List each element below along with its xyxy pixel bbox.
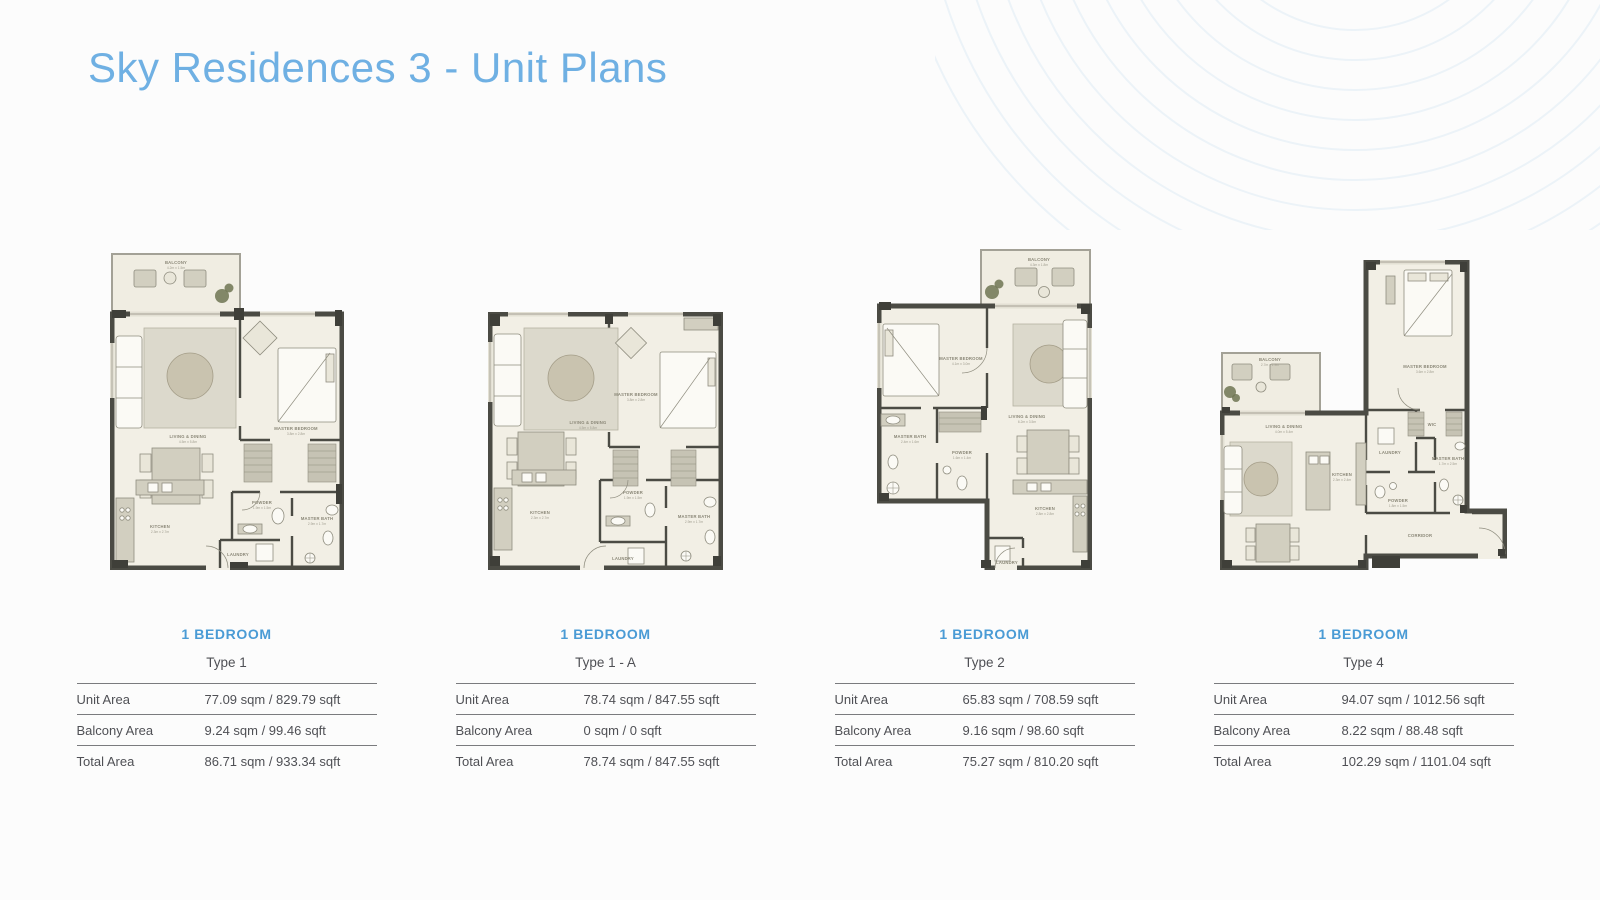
svg-text:POWDER: POWDER — [623, 490, 643, 495]
svg-text:MASTER BATH: MASTER BATH — [678, 514, 710, 519]
toilet — [705, 530, 715, 544]
row-label: Balcony Area — [456, 723, 584, 738]
svg-text:2.4m x 1.6m: 2.4m x 1.6m — [901, 440, 919, 444]
dining-chair — [140, 454, 151, 472]
kitchen-counter — [494, 488, 512, 550]
floor-plan-type-2: BALCONY 4.3m x 1.8m MASTER BEDROOM 4.1m … — [877, 248, 1092, 570]
toilet — [957, 476, 967, 490]
svg-text:1.7m x 2.5m: 1.7m x 2.5m — [1439, 462, 1457, 466]
dining-chair — [1290, 528, 1299, 542]
toilet — [323, 531, 333, 545]
svg-text:1.6m x 1.4m: 1.6m x 1.4m — [953, 456, 971, 460]
dining-chair — [202, 454, 213, 472]
sink — [1390, 483, 1397, 490]
toilet — [1440, 479, 1449, 491]
dining-chair — [1290, 546, 1299, 560]
svg-text:2.9m x 1.7m: 2.9m x 1.7m — [307, 522, 325, 526]
unit-type-label: Type 4 — [1343, 655, 1384, 670]
row-value: 75.27 sqm / 810.20 sqft — [963, 754, 1135, 769]
svg-text:4.3m x 1.8m: 4.3m x 1.8m — [1030, 263, 1048, 267]
floor-plan-type-1: BALCONY 4.2m x 1.5m LIVING & DINING 4.5m… — [110, 248, 344, 570]
sink — [704, 497, 716, 507]
dining-table — [1027, 430, 1069, 474]
lounge-chair — [1232, 364, 1252, 380]
svg-text:LIVING & DINING: LIVING & DINING — [1009, 414, 1046, 419]
dining-table — [1256, 524, 1290, 562]
sink — [536, 473, 546, 482]
sink — [148, 483, 158, 492]
row-label: Total Area — [77, 754, 205, 769]
dining-chair — [1017, 436, 1027, 452]
living-furniture — [1013, 320, 1087, 474]
table-row: Balcony Area 9.24 sqm / 99.46 sqft — [77, 714, 377, 745]
dining-chair — [1017, 458, 1027, 474]
washer — [256, 544, 273, 561]
dining-chair — [507, 438, 517, 455]
dining-chair — [1246, 546, 1255, 560]
svg-text:POWDER: POWDER — [1388, 498, 1408, 503]
unit-card-type-2: BALCONY 4.3m x 1.8m MASTER BEDROOM 4.1m … — [828, 238, 1141, 776]
table-row: Balcony Area 8.22 sqm / 88.48 sqft — [1214, 714, 1514, 745]
dresser — [684, 318, 718, 330]
svg-text:4.0m x 5.4m: 4.0m x 5.4m — [1275, 430, 1293, 434]
svg-text:1.8m x 1.5m: 1.8m x 1.5m — [1389, 504, 1407, 508]
svg-text:4.5m x 5.8m: 4.5m x 5.8m — [579, 426, 597, 430]
balcony-table — [164, 272, 176, 284]
svg-text:LAUNDRY: LAUNDRY — [996, 560, 1018, 565]
dining-chair — [566, 438, 576, 455]
svg-text:KITCHEN: KITCHEN — [1035, 506, 1055, 511]
floor-plan-type-4: BALCONY 2.7m x 1.9m MASTER BEDROOM 3.6m … — [1220, 260, 1507, 570]
pillow — [1408, 273, 1426, 281]
floor-plan-type-1a: LIVING & DINING 4.5m x 5.8m MASTER BEDRO… — [488, 312, 723, 570]
sink — [1027, 483, 1037, 491]
row-label: Total Area — [456, 754, 584, 769]
sink — [943, 466, 951, 474]
floor-plan-figure: BALCONY 4.2m x 1.5m LIVING & DINING 4.5m… — [110, 238, 344, 570]
area-table: Unit Area 77.09 sqm / 829.79 sqft Balcon… — [77, 683, 377, 776]
sofa — [1063, 320, 1087, 408]
kitchen-counter — [1356, 443, 1366, 505]
balcony-table — [1256, 382, 1266, 392]
unit-type-label: Type 1 — [206, 655, 247, 670]
sink — [1309, 456, 1318, 464]
dining-chair — [1246, 528, 1255, 542]
svg-text:LAUNDRY: LAUNDRY — [612, 556, 634, 561]
sink — [243, 525, 257, 533]
unit-card-type-4: BALCONY 2.7m x 1.9m MASTER BEDROOM 3.6m … — [1207, 238, 1520, 776]
pillow — [326, 354, 334, 382]
svg-text:MASTER BATH: MASTER BATH — [300, 516, 332, 521]
dresser — [1386, 276, 1395, 304]
row-value: 78.74 sqm / 847.55 sqft — [584, 754, 756, 769]
row-label: Unit Area — [456, 692, 584, 707]
wardrobe — [308, 444, 336, 482]
unit-bedroom-label: 1 BEDROOM — [1318, 626, 1408, 642]
kitchen-counter — [116, 498, 134, 562]
svg-text:2.7m x 1.9m: 2.7m x 1.9m — [1261, 363, 1279, 367]
svg-text:4.1m x 3.0m: 4.1m x 3.0m — [952, 362, 970, 366]
row-value: 0 sqm / 0 sqft — [584, 723, 756, 738]
svg-text:1.9m x 1.5m: 1.9m x 1.5m — [252, 506, 270, 510]
stair-block — [1372, 556, 1400, 568]
unit-type-label: Type 1 - A — [575, 655, 636, 670]
sink — [1455, 442, 1465, 450]
balcony-area — [1222, 353, 1320, 413]
pillow — [1430, 273, 1448, 281]
svg-text:MASTER BATH: MASTER BATH — [1432, 456, 1464, 461]
unit-plans-grid: BALCONY 4.2m x 1.5m LIVING & DINING 4.5m… — [70, 238, 1520, 776]
kitchen-counter — [1073, 496, 1087, 552]
wardrobe — [671, 450, 696, 486]
row-value: 86.71 sqm / 933.34 sqft — [205, 754, 377, 769]
unit-bedroom-label: 1 BEDROOM — [560, 626, 650, 642]
svg-text:3.8m x 2.8m: 3.8m x 2.8m — [286, 432, 304, 436]
toilet — [272, 508, 284, 524]
unit-type-label: Type 2 — [964, 655, 1005, 670]
wardrobe — [939, 412, 981, 432]
svg-text:POWDER: POWDER — [251, 500, 271, 505]
table-row: Total Area 78.74 sqm / 847.55 sqft — [456, 745, 756, 776]
sink — [886, 416, 900, 424]
row-value: 78.74 sqm / 847.55 sqft — [584, 692, 756, 707]
area-table: Unit Area 78.74 sqm / 847.55 sqft Balcon… — [456, 683, 756, 776]
svg-text:LIVING & DINING: LIVING & DINING — [169, 434, 206, 439]
dining-chair — [1069, 458, 1079, 474]
svg-text:4.2m x 1.5m: 4.2m x 1.5m — [166, 266, 184, 270]
row-label: Balcony Area — [77, 723, 205, 738]
lounge-chair — [1052, 268, 1074, 286]
svg-text:LIVING & DINING: LIVING & DINING — [570, 420, 607, 425]
lounge-chair — [184, 270, 206, 287]
floor-plan-figure: LIVING & DINING 4.5m x 5.8m MASTER BEDRO… — [488, 238, 723, 570]
row-label: Total Area — [1214, 754, 1342, 769]
area-table: Unit Area 65.83 sqm / 708.59 sqft Balcon… — [835, 683, 1135, 776]
svg-text:MASTER BEDROOM: MASTER BEDROOM — [939, 356, 983, 361]
sink — [611, 517, 625, 525]
page-title: Sky Residences 3 - Unit Plans — [88, 44, 667, 92]
row-value: 77.09 sqm / 829.79 sqft — [205, 692, 377, 707]
table-row: Unit Area 78.74 sqm / 847.55 sqft — [456, 683, 756, 714]
floor-plan-figure: BALCONY 4.3m x 1.8m MASTER BEDROOM 4.1m … — [877, 238, 1092, 570]
svg-text:KITCHEN: KITCHEN — [530, 510, 550, 515]
svg-text:2.9m x 1.7m: 2.9m x 1.7m — [685, 520, 703, 524]
lounge-chair — [1015, 268, 1037, 286]
svg-text:MASTER BEDROOM: MASTER BEDROOM — [274, 426, 318, 431]
row-label: Balcony Area — [835, 723, 963, 738]
svg-text:1.9m x 1.5m: 1.9m x 1.5m — [624, 496, 642, 500]
pillow — [708, 358, 715, 386]
svg-text:LIVING & DINING: LIVING & DINING — [1266, 424, 1303, 429]
dining-chair — [1069, 436, 1079, 452]
row-value: 9.16 sqm / 98.60 sqft — [963, 723, 1135, 738]
svg-text:BALCONY: BALCONY — [164, 260, 186, 265]
wardrobe — [244, 444, 272, 482]
sofa — [1224, 446, 1242, 514]
svg-text:MASTER BEDROOM: MASTER BEDROOM — [1403, 364, 1447, 369]
table-row: Balcony Area 9.16 sqm / 98.60 sqft — [835, 714, 1135, 745]
unit-card-type-1: BALCONY 4.2m x 1.5m LIVING & DINING 4.5m… — [70, 238, 383, 776]
row-label: Total Area — [835, 754, 963, 769]
coffee-table — [1030, 345, 1068, 383]
lounge-chair — [134, 270, 156, 287]
row-value: 9.24 sqm / 99.46 sqft — [205, 723, 377, 738]
area-table: Unit Area 94.07 sqm / 1012.56 sqft Balco… — [1214, 683, 1514, 776]
sink — [1041, 483, 1051, 491]
row-value: 8.22 sqm / 88.48 sqft — [1342, 723, 1514, 738]
sofa — [494, 334, 521, 426]
dining-table — [152, 448, 200, 504]
svg-text:4.5m x 5.8m: 4.5m x 5.8m — [178, 440, 196, 444]
svg-text:BALCONY: BALCONY — [1028, 257, 1050, 262]
sink — [1320, 456, 1329, 464]
table-row: Balcony Area 0 sqm / 0 sqft — [456, 714, 756, 745]
coffee-table — [1244, 462, 1278, 496]
row-label: Unit Area — [835, 692, 963, 707]
svg-text:MASTER BEDROOM: MASTER BEDROOM — [614, 392, 658, 397]
table-row: Unit Area 65.83 sqm / 708.59 sqft — [835, 683, 1135, 714]
table-row: Total Area 86.71 sqm / 933.34 sqft — [77, 745, 377, 776]
svg-text:2.3m x 2.7m: 2.3m x 2.7m — [531, 516, 549, 520]
table-row: Total Area 75.27 sqm / 810.20 sqft — [835, 745, 1135, 776]
svg-text:BALCONY: BALCONY — [1259, 357, 1281, 362]
coffee-table — [167, 353, 213, 399]
row-value: 65.83 sqm / 708.59 sqft — [963, 692, 1135, 707]
svg-text:LAUNDRY: LAUNDRY — [1379, 450, 1401, 455]
sink — [162, 483, 172, 492]
svg-text:LAUNDRY: LAUNDRY — [227, 552, 249, 557]
row-value: 102.29 sqm / 1101.04 sqft — [1342, 754, 1514, 769]
toilet — [888, 455, 898, 469]
table-row: Unit Area 77.09 sqm / 829.79 sqft — [77, 683, 377, 714]
row-label: Unit Area — [1214, 692, 1342, 707]
coffee-table — [548, 355, 594, 401]
table-row: Unit Area 94.07 sqm / 1012.56 sqft — [1214, 683, 1514, 714]
washer — [1378, 428, 1394, 444]
table-row: Total Area 102.29 sqm / 1101.04 sqft — [1214, 745, 1514, 776]
sink — [326, 505, 338, 515]
svg-text:KITCHEN: KITCHEN — [1332, 472, 1352, 477]
balcony-table — [1039, 287, 1050, 298]
svg-text:WIC: WIC — [1428, 422, 1437, 427]
toilet — [1375, 486, 1385, 498]
svg-text:2.8m x 2.8m: 2.8m x 2.8m — [1036, 512, 1054, 516]
svg-text:POWDER: POWDER — [952, 450, 972, 455]
floor-plan-figure: BALCONY 2.7m x 1.9m MASTER BEDROOM 3.6m … — [1220, 238, 1507, 570]
row-label: Balcony Area — [1214, 723, 1342, 738]
toilet — [645, 503, 655, 517]
unit-bedroom-label: 1 BEDROOM — [939, 626, 1029, 642]
svg-text:3.8m x 2.8m: 3.8m x 2.8m — [627, 398, 645, 402]
wardrobe — [613, 450, 638, 486]
svg-text:KITCHEN: KITCHEN — [149, 524, 169, 529]
svg-text:2.3m x 2.4m: 2.3m x 2.4m — [1333, 478, 1351, 482]
svg-text:2.3m x 2.7m: 2.3m x 2.7m — [150, 530, 168, 534]
row-value: 94.07 sqm / 1012.56 sqft — [1342, 692, 1514, 707]
svg-text:3.6m x 2.8m: 3.6m x 2.8m — [1416, 370, 1434, 374]
svg-text:6.2m x 3.5m: 6.2m x 3.5m — [1018, 420, 1036, 424]
decorative-arcs — [935, 0, 1600, 230]
unit-card-type-1a: LIVING & DINING 4.5m x 5.8m MASTER BEDRO… — [449, 238, 762, 776]
svg-text:MASTER BATH: MASTER BATH — [894, 434, 926, 439]
sofa — [116, 336, 142, 428]
svg-text:CORRIDOR: CORRIDOR — [1408, 533, 1432, 538]
sink — [522, 473, 532, 482]
unit-bedroom-label: 1 BEDROOM — [181, 626, 271, 642]
row-label: Unit Area — [77, 692, 205, 707]
